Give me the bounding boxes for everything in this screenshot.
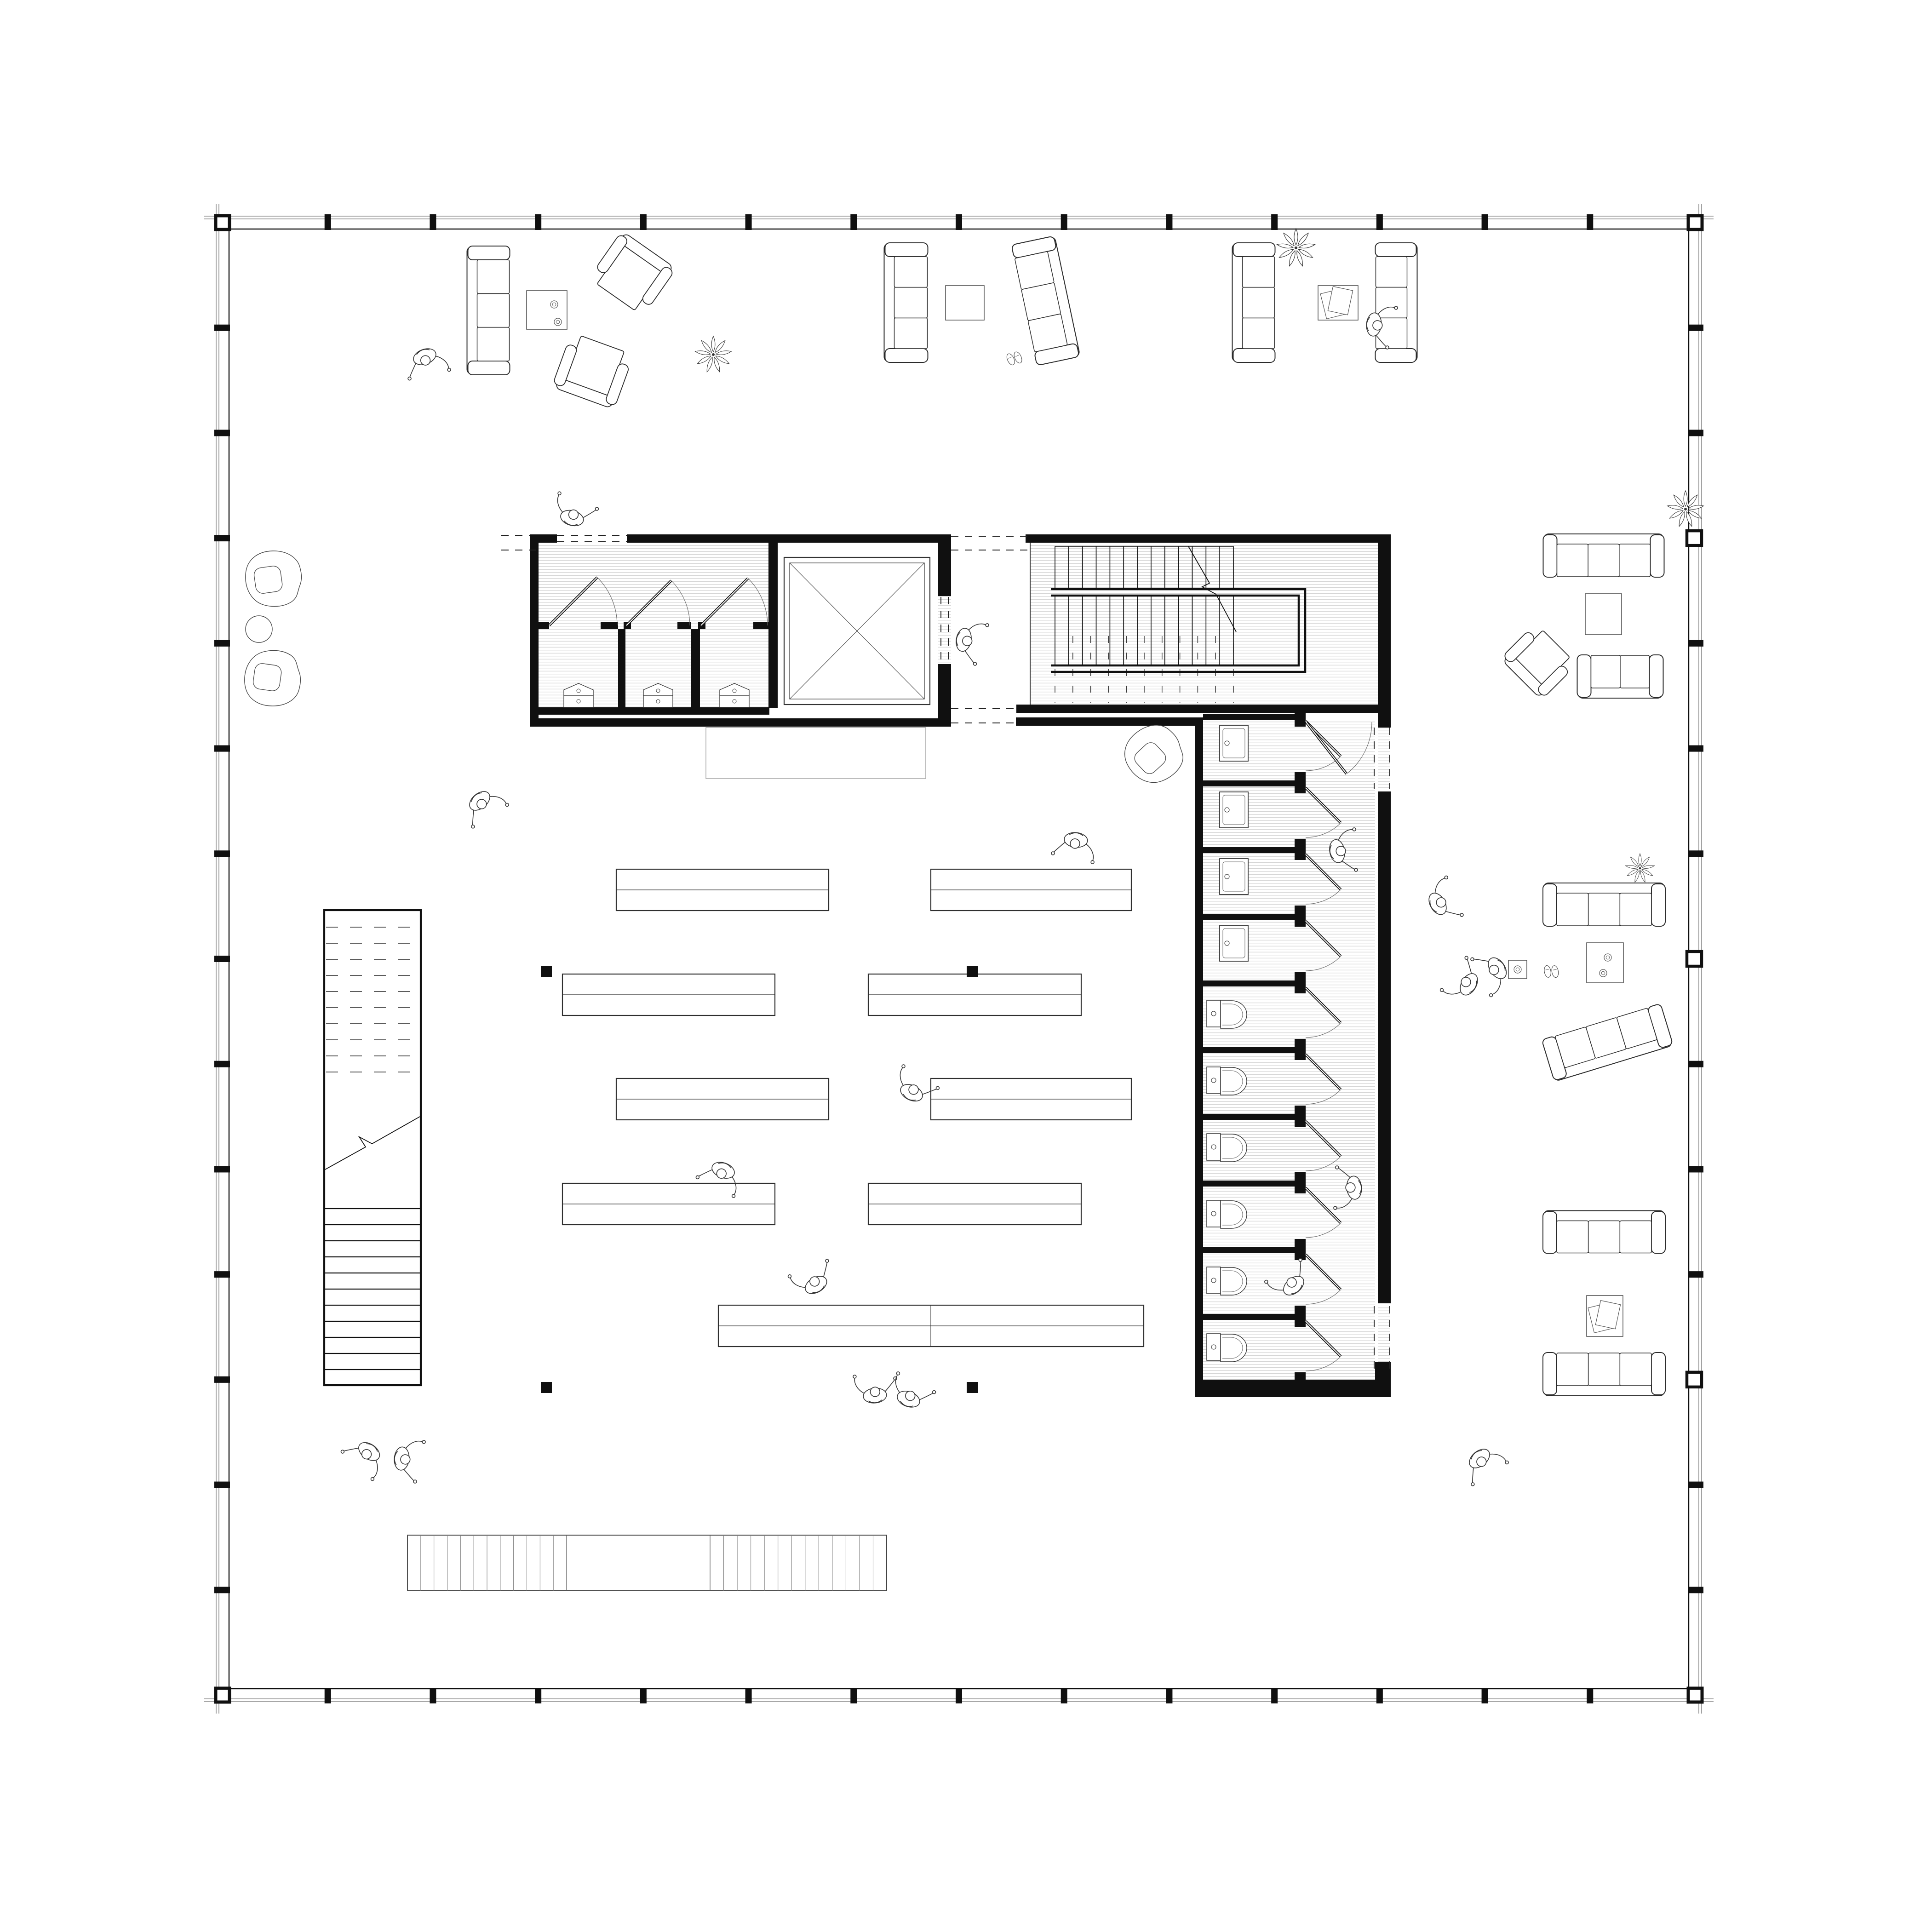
- person: [457, 782, 510, 833]
- bench: [616, 869, 829, 911]
- person: [853, 1371, 899, 1405]
- sofa: [1543, 534, 1664, 577]
- bench: [616, 1078, 829, 1120]
- toilet: [1207, 1134, 1247, 1162]
- armchair: [552, 333, 634, 410]
- interior-column: [967, 966, 978, 977]
- round-table: [246, 616, 272, 642]
- elevator-shaft: [784, 557, 930, 705]
- person: [1051, 831, 1097, 864]
- lounge-pouf: [246, 551, 302, 607]
- perimeter-wall: [204, 204, 1714, 1714]
- person: [392, 1438, 425, 1484]
- floor-plan-canvas: [0, 0, 1932, 1932]
- lounge-pouf: [1115, 716, 1193, 793]
- person: [952, 619, 989, 666]
- cup: [550, 301, 558, 308]
- sofa: [1011, 236, 1080, 366]
- table: [1587, 943, 1623, 983]
- toilet: [1207, 1000, 1247, 1028]
- cup: [554, 318, 562, 326]
- person: [1439, 953, 1487, 1005]
- sofa: [1543, 1353, 1665, 1396]
- corner-column: [1688, 216, 1702, 229]
- toilet: [1207, 1200, 1247, 1228]
- toilet: [1207, 1067, 1247, 1095]
- cup: [1604, 954, 1611, 961]
- bench: [868, 1183, 1081, 1225]
- stair-west: [324, 910, 421, 1385]
- floor-hatch-regions: [539, 543, 1390, 1380]
- person: [337, 1432, 390, 1481]
- sink: [1220, 859, 1248, 894]
- stair-break-line: [325, 1117, 420, 1170]
- sofa: [1376, 243, 1417, 362]
- sink: [1220, 725, 1248, 761]
- person: [1457, 1440, 1509, 1491]
- bench: [562, 1183, 775, 1225]
- plant: [1625, 854, 1655, 883]
- lounge-pouf: [245, 650, 301, 706]
- interior-column: [541, 966, 552, 977]
- toilet: [1207, 1267, 1247, 1295]
- corner-column: [216, 1688, 229, 1702]
- bench: [868, 974, 1081, 1015]
- sofa: [1542, 1003, 1673, 1082]
- armchair: [1500, 623, 1577, 700]
- floor-plan: [0, 0, 1932, 1932]
- corner-column: [1688, 1688, 1702, 1702]
- person: [787, 1254, 840, 1301]
- bench: [562, 974, 775, 1015]
- figures: [337, 229, 1704, 1491]
- armchair: [589, 231, 676, 316]
- corner-column: [216, 216, 229, 229]
- sanitary-fixtures: [564, 683, 1248, 1362]
- bench: [931, 1078, 1131, 1120]
- plant: [1667, 491, 1704, 527]
- plant: [1277, 229, 1315, 267]
- person: [1421, 875, 1468, 928]
- interior-column: [967, 1382, 978, 1393]
- elevator-lobby-mat: [706, 728, 926, 779]
- slatted-bench: [407, 1535, 887, 1591]
- sofa: [1233, 243, 1275, 362]
- cup: [1599, 969, 1607, 977]
- toilet: [1207, 1334, 1247, 1362]
- sofa: [467, 246, 510, 375]
- sofa: [1577, 655, 1663, 698]
- plant: [695, 336, 732, 373]
- sofa: [884, 243, 928, 362]
- table: [1585, 594, 1622, 635]
- person: [400, 343, 451, 386]
- bench: [718, 1305, 1144, 1347]
- bench: [931, 869, 1131, 911]
- sofa: [1543, 1211, 1665, 1254]
- sink: [1220, 925, 1248, 961]
- table: [946, 286, 984, 320]
- person: [550, 491, 600, 531]
- slippers: [1005, 350, 1023, 367]
- slippers: [1543, 964, 1559, 980]
- interior-column: [541, 1382, 552, 1393]
- sofa: [1543, 883, 1665, 926]
- furniture: [245, 231, 1673, 1591]
- cup: [1514, 966, 1521, 973]
- sink: [1220, 792, 1248, 828]
